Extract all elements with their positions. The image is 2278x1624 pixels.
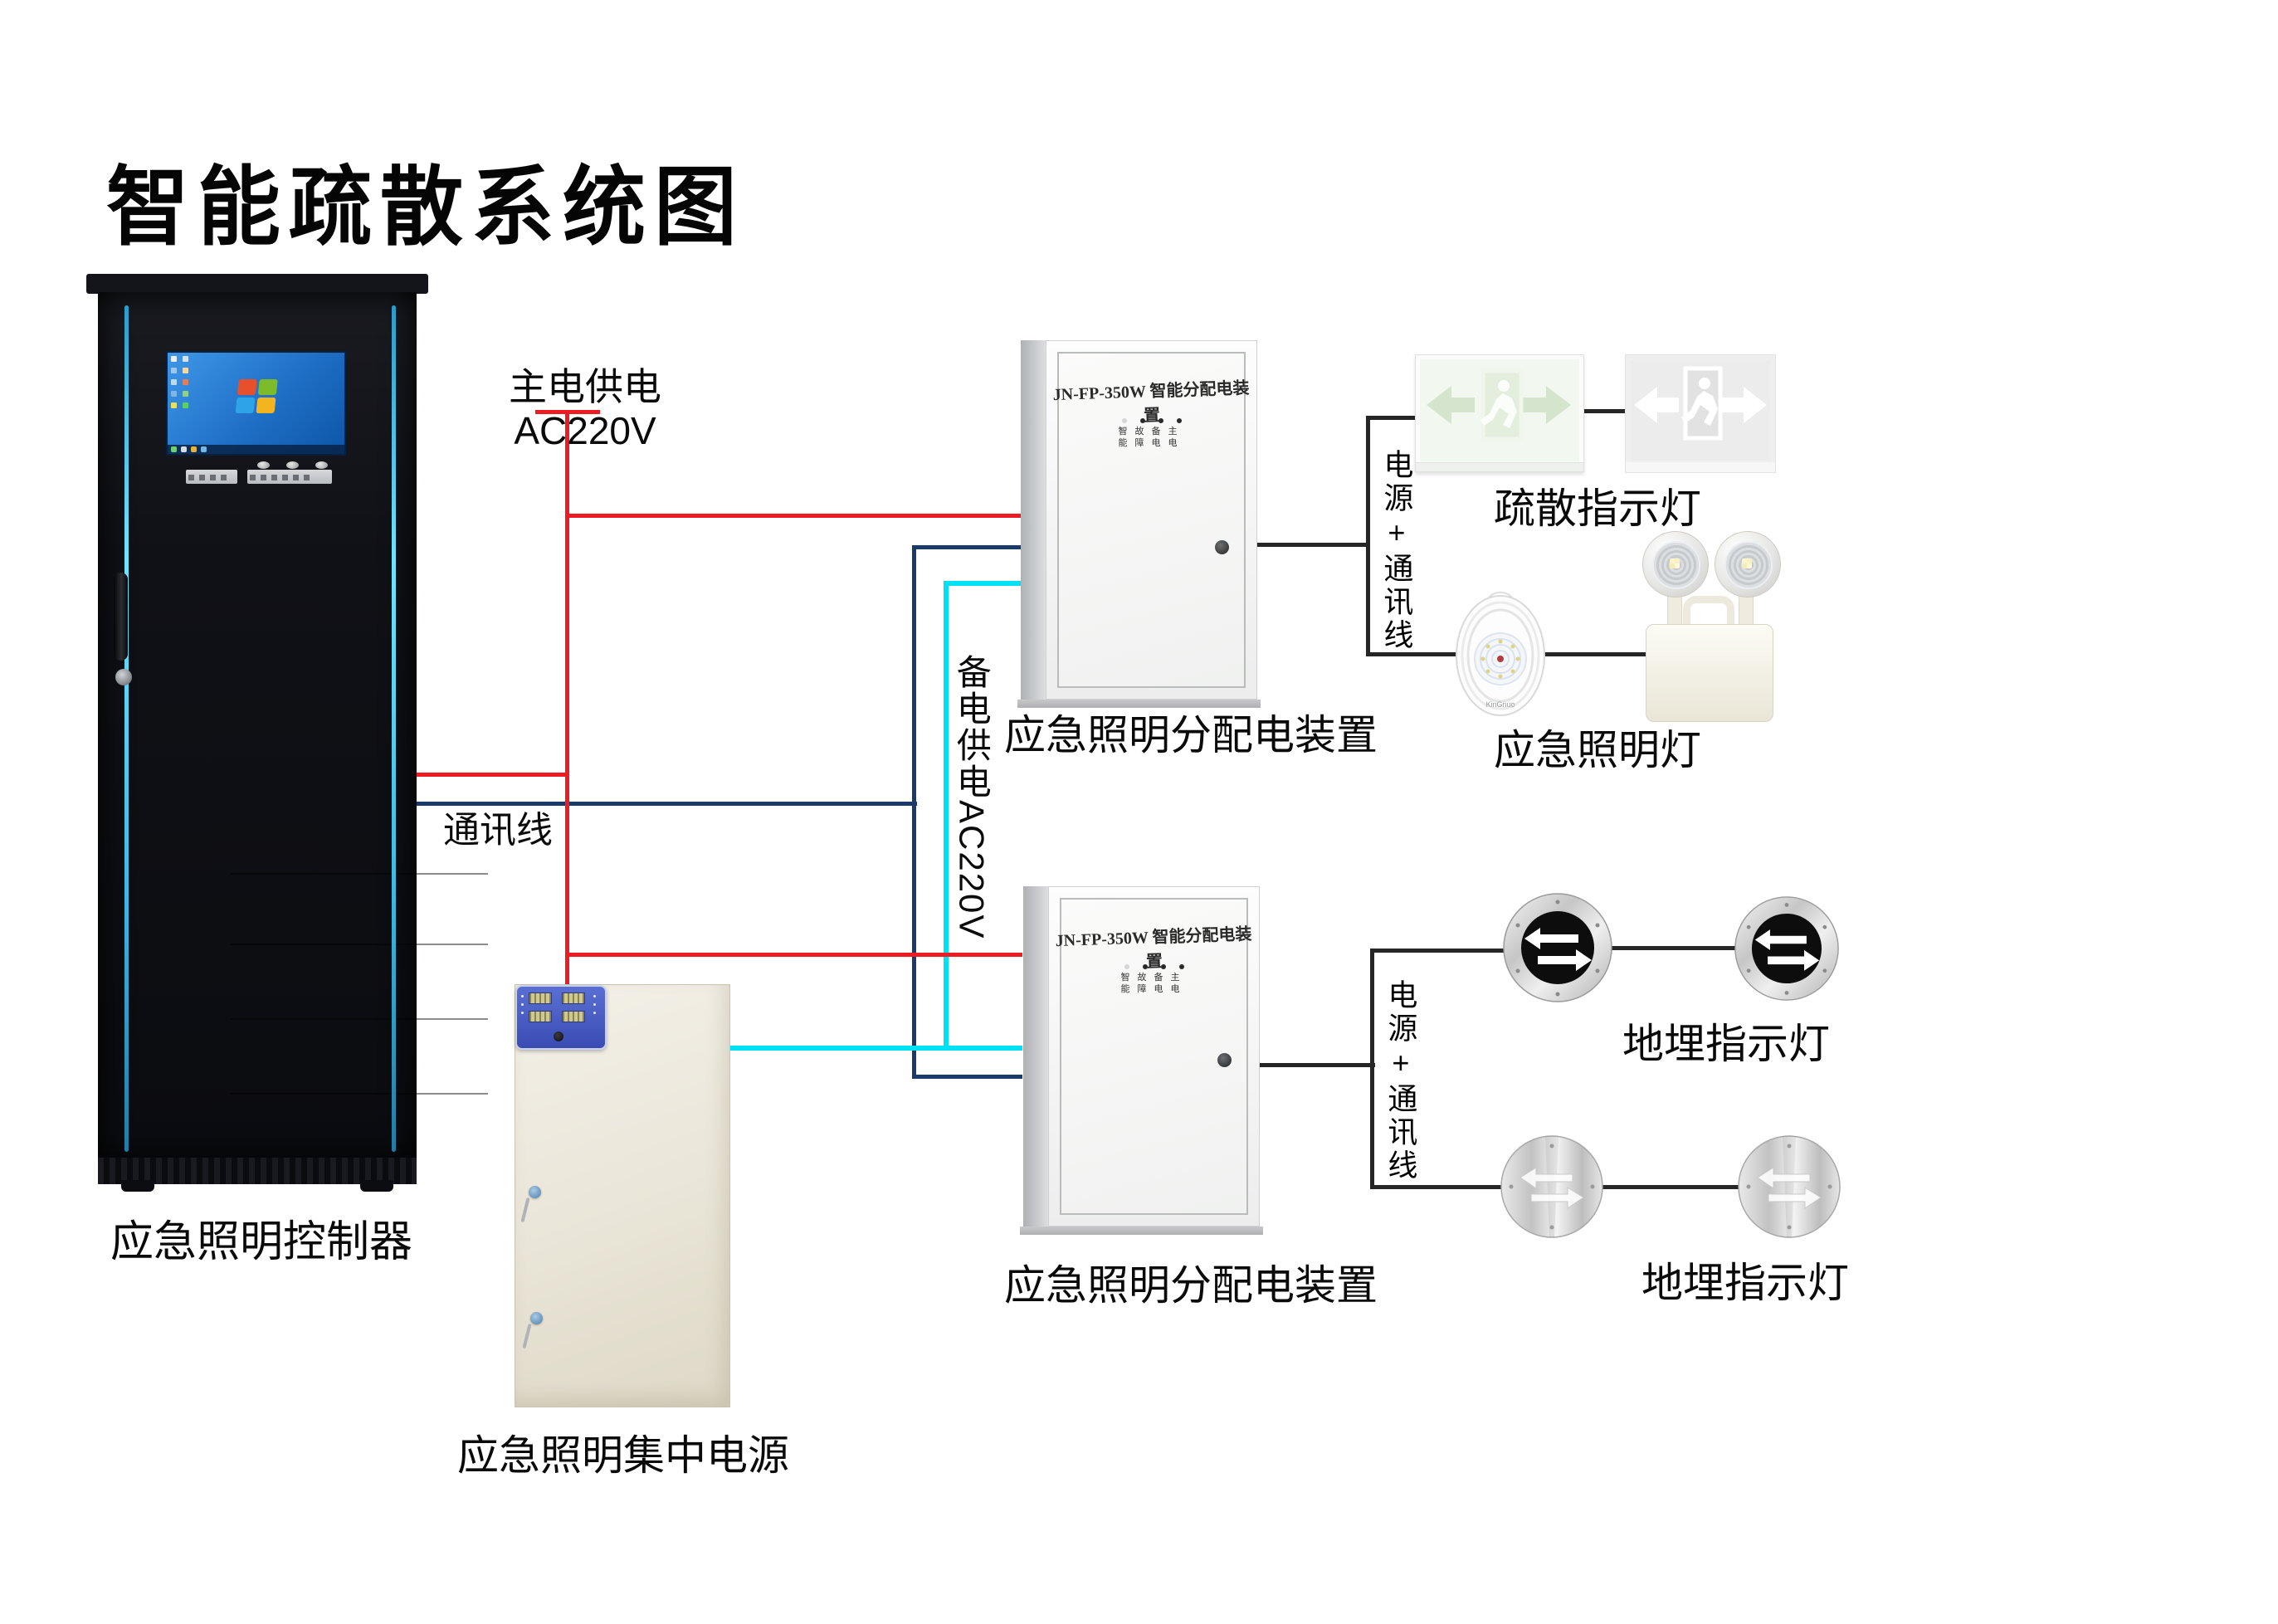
- ground-light-1b: [1734, 895, 1840, 1002]
- bracket1-vertical: [1366, 416, 1370, 656]
- desktop-icon: [183, 356, 188, 362]
- round-emergency-lamp: KinGnuo: [1455, 583, 1546, 719]
- cabinet-handle: [114, 573, 128, 661]
- cabinet-screen: [166, 351, 346, 456]
- cabinet-seam: [231, 1018, 488, 1020]
- twin-head-emergency-light: [1646, 624, 1773, 722]
- comm-wire-to-box1: [912, 545, 1022, 549]
- backup-wire-vertical: [944, 581, 949, 1051]
- central-power-supply: [515, 984, 730, 1407]
- desktop-icon: [183, 391, 188, 397]
- bracket2-arm-top: [1370, 949, 1507, 953]
- ground-light-2b: [1737, 1134, 1841, 1239]
- desktop-icon: [183, 379, 188, 385]
- box-side-face: [1023, 886, 1048, 1227]
- connector-ground1a-1b: [1611, 946, 1737, 950]
- cabinet-label: 应急照明控制器: [95, 1218, 427, 1268]
- twin-lamp-handle: [1683, 596, 1734, 626]
- cabinet-keypad-right: [247, 470, 332, 484]
- connector-box2: [1257, 1063, 1375, 1067]
- psu-keyhole-icon: [530, 1312, 543, 1324]
- bracket1-arm-top: [1366, 416, 1419, 420]
- arrow-right-icon: [1523, 386, 1571, 424]
- psu-knob: [554, 1031, 563, 1041]
- cabinet-foot: [360, 1180, 393, 1192]
- arrow-left-icon: [1634, 387, 1679, 423]
- bracket2-vertical: [1370, 949, 1374, 1189]
- desktop-icon: [183, 368, 188, 373]
- desktop-icon: [171, 379, 177, 385]
- box2-label: 应急照明分配电装置: [983, 1262, 1398, 1310]
- ground-light-1a: [1502, 892, 1613, 1003]
- box-front: JN-FP-350W 智能分配电装置 智故备主 能障电电: [1048, 886, 1260, 1227]
- ground-light-label-1: 地埋指示灯: [1618, 1021, 1834, 1069]
- cabinet-led-strip-left: [124, 305, 129, 1152]
- exit-sign-2: [1625, 354, 1776, 473]
- exit-sign-panel: [1631, 360, 1770, 461]
- cabinet-seam: [231, 873, 488, 875]
- twin-lamp-head-right: [1715, 531, 1781, 597]
- box-front: JN-FP-350W 智能分配电装置 智故备主 能障电电: [1046, 340, 1257, 700]
- psu-key: [520, 1197, 529, 1222]
- cabinet-lock-icon: [115, 669, 132, 685]
- cabinet-keypad-left: [186, 470, 237, 484]
- main-power-to-cabinet: [411, 773, 568, 777]
- led-chip: [1742, 558, 1752, 568]
- label-comm-line: 通讯线: [432, 810, 564, 852]
- desktop-icon: [171, 356, 177, 362]
- start-orb-icon: [171, 446, 177, 452]
- arrow-left-icon: [1427, 386, 1475, 424]
- taskbar-icon: [201, 446, 207, 452]
- exit-sign-lip: [1416, 462, 1583, 471]
- psu-label: 应急照明集中电源: [456, 1432, 791, 1480]
- box-side-face: [1021, 340, 1046, 700]
- emergency-light-label: 应急照明灯: [1494, 727, 1701, 775]
- desktop-icon: [183, 402, 188, 408]
- desktop-icon: [171, 368, 177, 373]
- cabinet-button: [257, 461, 270, 469]
- box2-led-row2: 能障电电: [1049, 982, 1259, 995]
- box-lock-icon: [1217, 1053, 1232, 1067]
- windows-logo-icon: [232, 378, 279, 416]
- twin-lamp-head-left: [1642, 531, 1709, 597]
- ground-light-2a: [1500, 1134, 1604, 1239]
- psu-keyhole-icon: [529, 1186, 541, 1198]
- main-power-to-box1: [565, 514, 1022, 518]
- box1-label: 应急照明分配电装置: [983, 712, 1398, 760]
- bracket2-label: 电源+通讯线: [1383, 973, 1417, 1188]
- cabinet-led-strip-right: [392, 305, 396, 1152]
- led-chip: [1670, 558, 1680, 568]
- exit-sign-panel: [1420, 359, 1579, 461]
- box-base: [1017, 700, 1261, 708]
- connector-lamp-twin: [1541, 652, 1653, 656]
- exit-sign-1: [1415, 354, 1584, 472]
- comm-wire-vertical: [912, 545, 916, 1079]
- taskbar-icon: [191, 446, 197, 452]
- box-lock-icon: [1215, 540, 1229, 554]
- psu-control-panel: [515, 985, 607, 1050]
- exit-sign-label: 疏散指示灯: [1490, 485, 1705, 534]
- exit-sign-lip: [1626, 462, 1775, 472]
- round-lamp-brand: KinGnuo: [1485, 700, 1515, 709]
- arrow-right-icon: [1722, 387, 1767, 423]
- taskbar-icon: [181, 446, 187, 452]
- cabinet-seam: [231, 944, 488, 945]
- bracket1-label: 电源+通讯线: [1379, 442, 1413, 658]
- connector-ground2a-2b: [1602, 1185, 1741, 1189]
- backup-wire-psu-to-box2: [729, 1046, 1022, 1051]
- comm-wire-cabinet: [411, 802, 917, 806]
- desktop-icon: [171, 391, 177, 397]
- ground-light-label-2: 地埋指示灯: [1637, 1260, 1853, 1308]
- psu-key: [522, 1324, 531, 1348]
- cabinet-top-cap: [86, 274, 428, 294]
- connector-sign1-sign2: [1581, 409, 1627, 413]
- evacuation-system-diagram: 智能疏散系统图 主电供电AC220V 通讯线 备电供电AC220V: [0, 0, 2278, 1624]
- backup-wire-to-box1: [944, 581, 1022, 586]
- label-main-power: 主电供电AC220V: [448, 365, 722, 453]
- distribution-box-2: JN-FP-350W 智能分配电装置 智故备主 能障电电: [1023, 886, 1260, 1227]
- cabinet-button: [315, 461, 328, 469]
- desktop-icon: [171, 402, 177, 408]
- comm-wire-to-box2: [912, 1075, 1022, 1079]
- page-title: 智能疏散系统图: [106, 137, 745, 262]
- connector-box1: [1257, 543, 1369, 547]
- label-backup-power: 备电供电AC220V: [951, 631, 991, 963]
- cabinet-button: [286, 461, 299, 469]
- cabinet-foot: [121, 1180, 154, 1192]
- box1-led-row2: 能障电电: [1046, 436, 1256, 449]
- cabinet-seam: [231, 1093, 488, 1095]
- taskbar: [168, 445, 344, 454]
- distribution-box-1: JN-FP-350W 智能分配电装置 智故备主 能障电电: [1021, 340, 1257, 700]
- main-power-vertical: [565, 412, 569, 992]
- box-base: [1020, 1227, 1263, 1235]
